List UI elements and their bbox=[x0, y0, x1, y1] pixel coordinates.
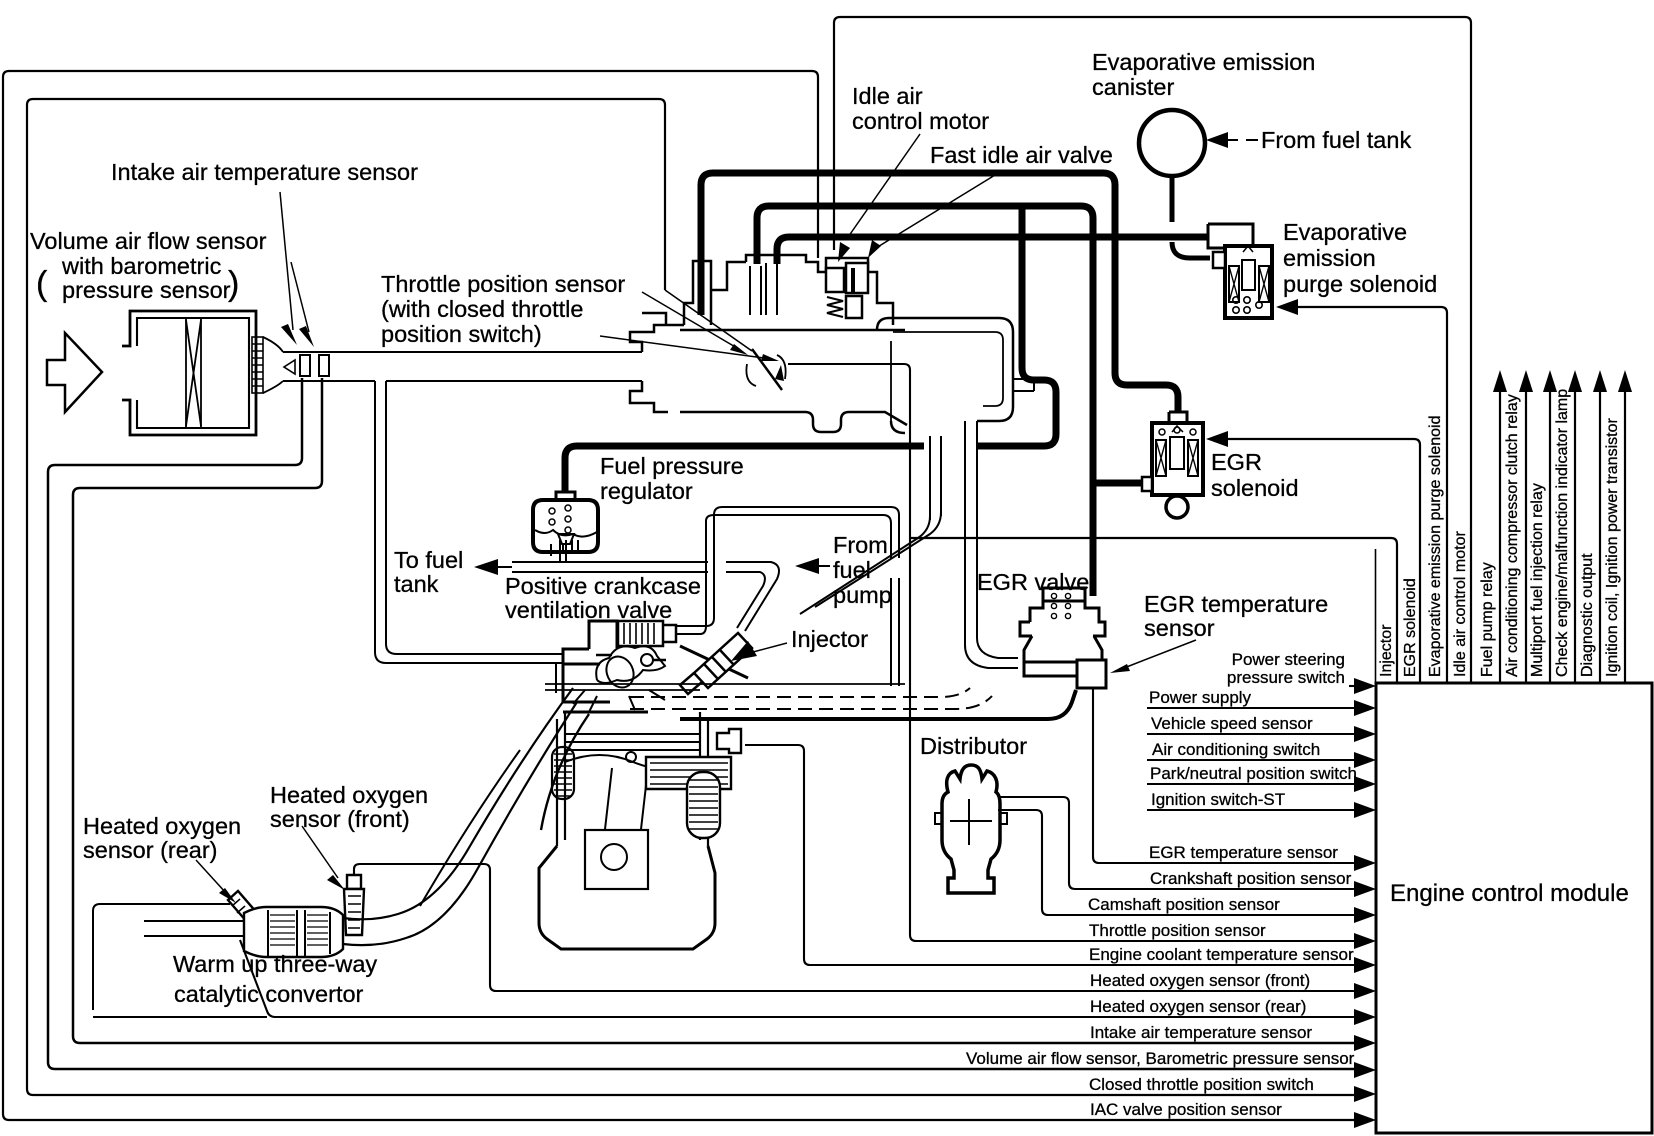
svg-text:Throttle position sensor: Throttle position sensor bbox=[1089, 921, 1266, 940]
svg-text:Injector: Injector bbox=[791, 626, 868, 652]
svg-text:regulator: regulator bbox=[600, 478, 693, 504]
svg-text:From fuel tank: From fuel tank bbox=[1261, 127, 1411, 153]
svg-text:Warm up three-way: Warm up three-way bbox=[173, 951, 377, 977]
svg-text:Ignition coil, Ignition power: Ignition coil, Ignition power transistor bbox=[1604, 418, 1621, 677]
svg-text:To fuel: To fuel bbox=[394, 547, 463, 573]
svg-text:Injector: Injector bbox=[1378, 624, 1395, 677]
svg-text:Fuel pressure: Fuel pressure bbox=[600, 453, 744, 479]
svg-text:Evaporative emission purge sol: Evaporative emission purge solenoid bbox=[1427, 416, 1444, 677]
svg-text:Air conditioning compressor cl: Air conditioning compressor clutch relay bbox=[1504, 394, 1521, 677]
svg-text:purge solenoid: purge solenoid bbox=[1283, 271, 1437, 297]
svg-text:Heated oxygen sensor (rear): Heated oxygen sensor (rear) bbox=[1090, 997, 1306, 1016]
svg-text:Volume air flow sensor, Barome: Volume air flow sensor, Barometric press… bbox=[966, 1049, 1355, 1068]
svg-text:EGR: EGR bbox=[1211, 449, 1262, 475]
svg-text:Check engine/malfunction indic: Check engine/malfunction indicator lamp bbox=[1554, 389, 1571, 677]
svg-text:ventilation valve: ventilation valve bbox=[505, 597, 672, 623]
svg-text:with barometric: with barometric bbox=[61, 253, 222, 279]
svg-text:catalytic convertor: catalytic convertor bbox=[174, 981, 364, 1007]
svg-text:Heated oxygen sensor (front): Heated oxygen sensor (front) bbox=[1090, 971, 1310, 990]
svg-text:sensor: sensor bbox=[1144, 615, 1215, 641]
svg-text:Power steering: Power steering bbox=[1232, 650, 1345, 669]
svg-text:Ignition switch-ST: Ignition switch-ST bbox=[1151, 790, 1285, 809]
svg-text:Throttle position sensor: Throttle position sensor bbox=[381, 271, 625, 297]
svg-text:EGR valve: EGR valve bbox=[977, 569, 1089, 595]
svg-text:position switch): position switch) bbox=[381, 321, 542, 347]
svg-text:Air conditioning switch: Air conditioning switch bbox=[1152, 740, 1320, 759]
svg-text:Power supply: Power supply bbox=[1149, 688, 1252, 707]
svg-text:(with closed throttle: (with closed throttle bbox=[381, 296, 583, 322]
svg-text:Volume air flow sensor: Volume air flow sensor bbox=[30, 228, 267, 254]
svg-text:sensor (rear): sensor (rear) bbox=[83, 837, 218, 863]
svg-text:Distributor: Distributor bbox=[920, 733, 1027, 759]
svg-text:Engine control module: Engine control module bbox=[1390, 880, 1629, 907]
svg-text:Idle air control motor: Idle air control motor bbox=[1452, 530, 1469, 677]
svg-text:Evaporative: Evaporative bbox=[1283, 219, 1407, 245]
svg-text:pressure sensor: pressure sensor bbox=[62, 277, 231, 303]
svg-text:Crankshaft position sensor: Crankshaft position sensor bbox=[1150, 869, 1352, 888]
svg-text:Multiport fuel injection relay: Multiport fuel injection relay bbox=[1529, 483, 1546, 677]
svg-text:Evaporative emission: Evaporative emission bbox=[1092, 49, 1315, 75]
svg-text:IAC valve position sensor: IAC valve position sensor bbox=[1090, 1100, 1282, 1119]
svg-text:(: ( bbox=[36, 265, 48, 303]
svg-text:Diagnostic output: Diagnostic output bbox=[1579, 553, 1596, 677]
svg-text:): ) bbox=[228, 265, 239, 303]
svg-text:sensor (front): sensor (front) bbox=[270, 806, 410, 832]
svg-text:Heated oxygen: Heated oxygen bbox=[83, 813, 241, 839]
svg-text:Vehicle speed sensor: Vehicle speed sensor bbox=[1151, 714, 1313, 733]
svg-text:Camshaft position sensor: Camshaft position sensor bbox=[1088, 895, 1280, 914]
svg-text:canister: canister bbox=[1092, 74, 1174, 100]
svg-text:tank: tank bbox=[394, 571, 439, 597]
svg-text:fuel: fuel bbox=[833, 557, 871, 583]
svg-text:From: From bbox=[833, 532, 888, 558]
svg-text:Idle air: Idle air bbox=[852, 83, 923, 109]
svg-text:Intake air temperature sensor: Intake air temperature sensor bbox=[1090, 1023, 1312, 1042]
svg-text:EGR solenoid: EGR solenoid bbox=[1402, 578, 1419, 677]
svg-text:emission: emission bbox=[1283, 245, 1376, 271]
svg-text:Fast idle air valve: Fast idle air valve bbox=[930, 142, 1113, 168]
svg-text:Engine coolant temperature sen: Engine coolant temperature sensor bbox=[1089, 945, 1354, 964]
svg-text:Park/neutral position switch: Park/neutral position switch bbox=[1150, 764, 1357, 783]
svg-text:Fuel pump relay: Fuel pump relay bbox=[1479, 562, 1496, 677]
svg-text:Positive crankcase: Positive crankcase bbox=[505, 573, 701, 599]
svg-text:Closed throttle position switc: Closed throttle position switch bbox=[1089, 1075, 1314, 1094]
svg-text:Intake air temperature sensor: Intake air temperature sensor bbox=[111, 159, 418, 185]
svg-text:EGR temperature: EGR temperature bbox=[1144, 591, 1328, 617]
svg-text:solenoid: solenoid bbox=[1211, 475, 1299, 501]
svg-text:control motor: control motor bbox=[852, 108, 989, 134]
svg-text:pressure switch: pressure switch bbox=[1227, 668, 1345, 687]
svg-text:Heated oxygen: Heated oxygen bbox=[270, 782, 428, 808]
svg-text:EGR temperature sensor: EGR temperature sensor bbox=[1149, 843, 1338, 862]
